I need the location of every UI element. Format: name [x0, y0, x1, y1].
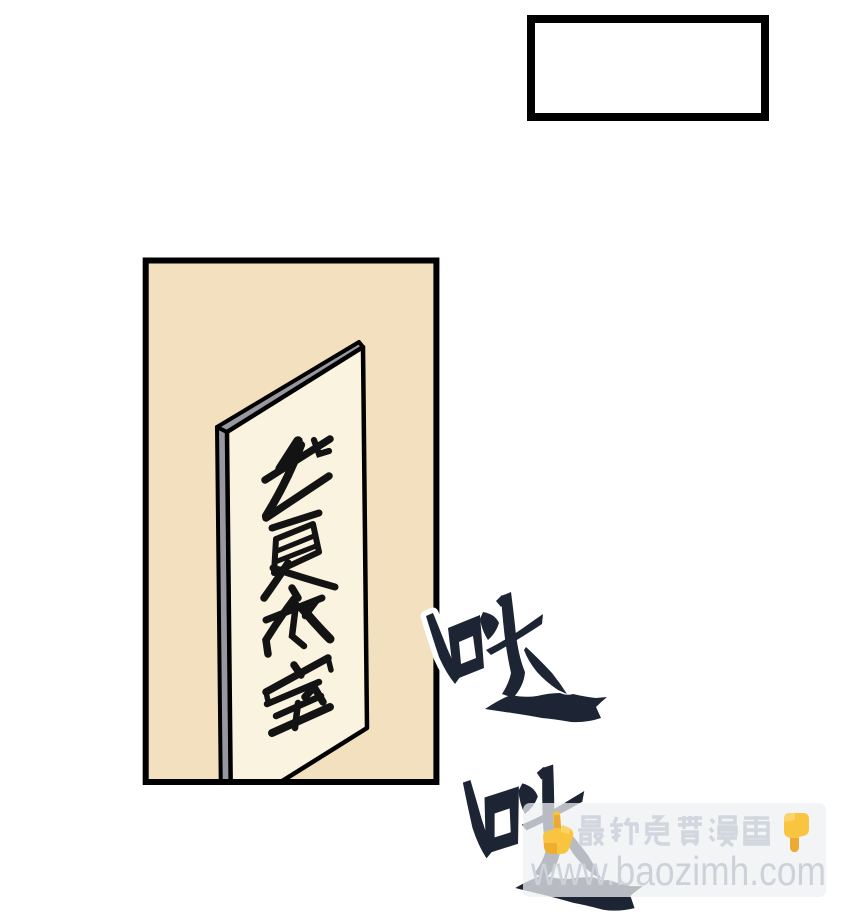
- svg-text:www.baozimh.com: www.baozimh.com: [530, 848, 826, 894]
